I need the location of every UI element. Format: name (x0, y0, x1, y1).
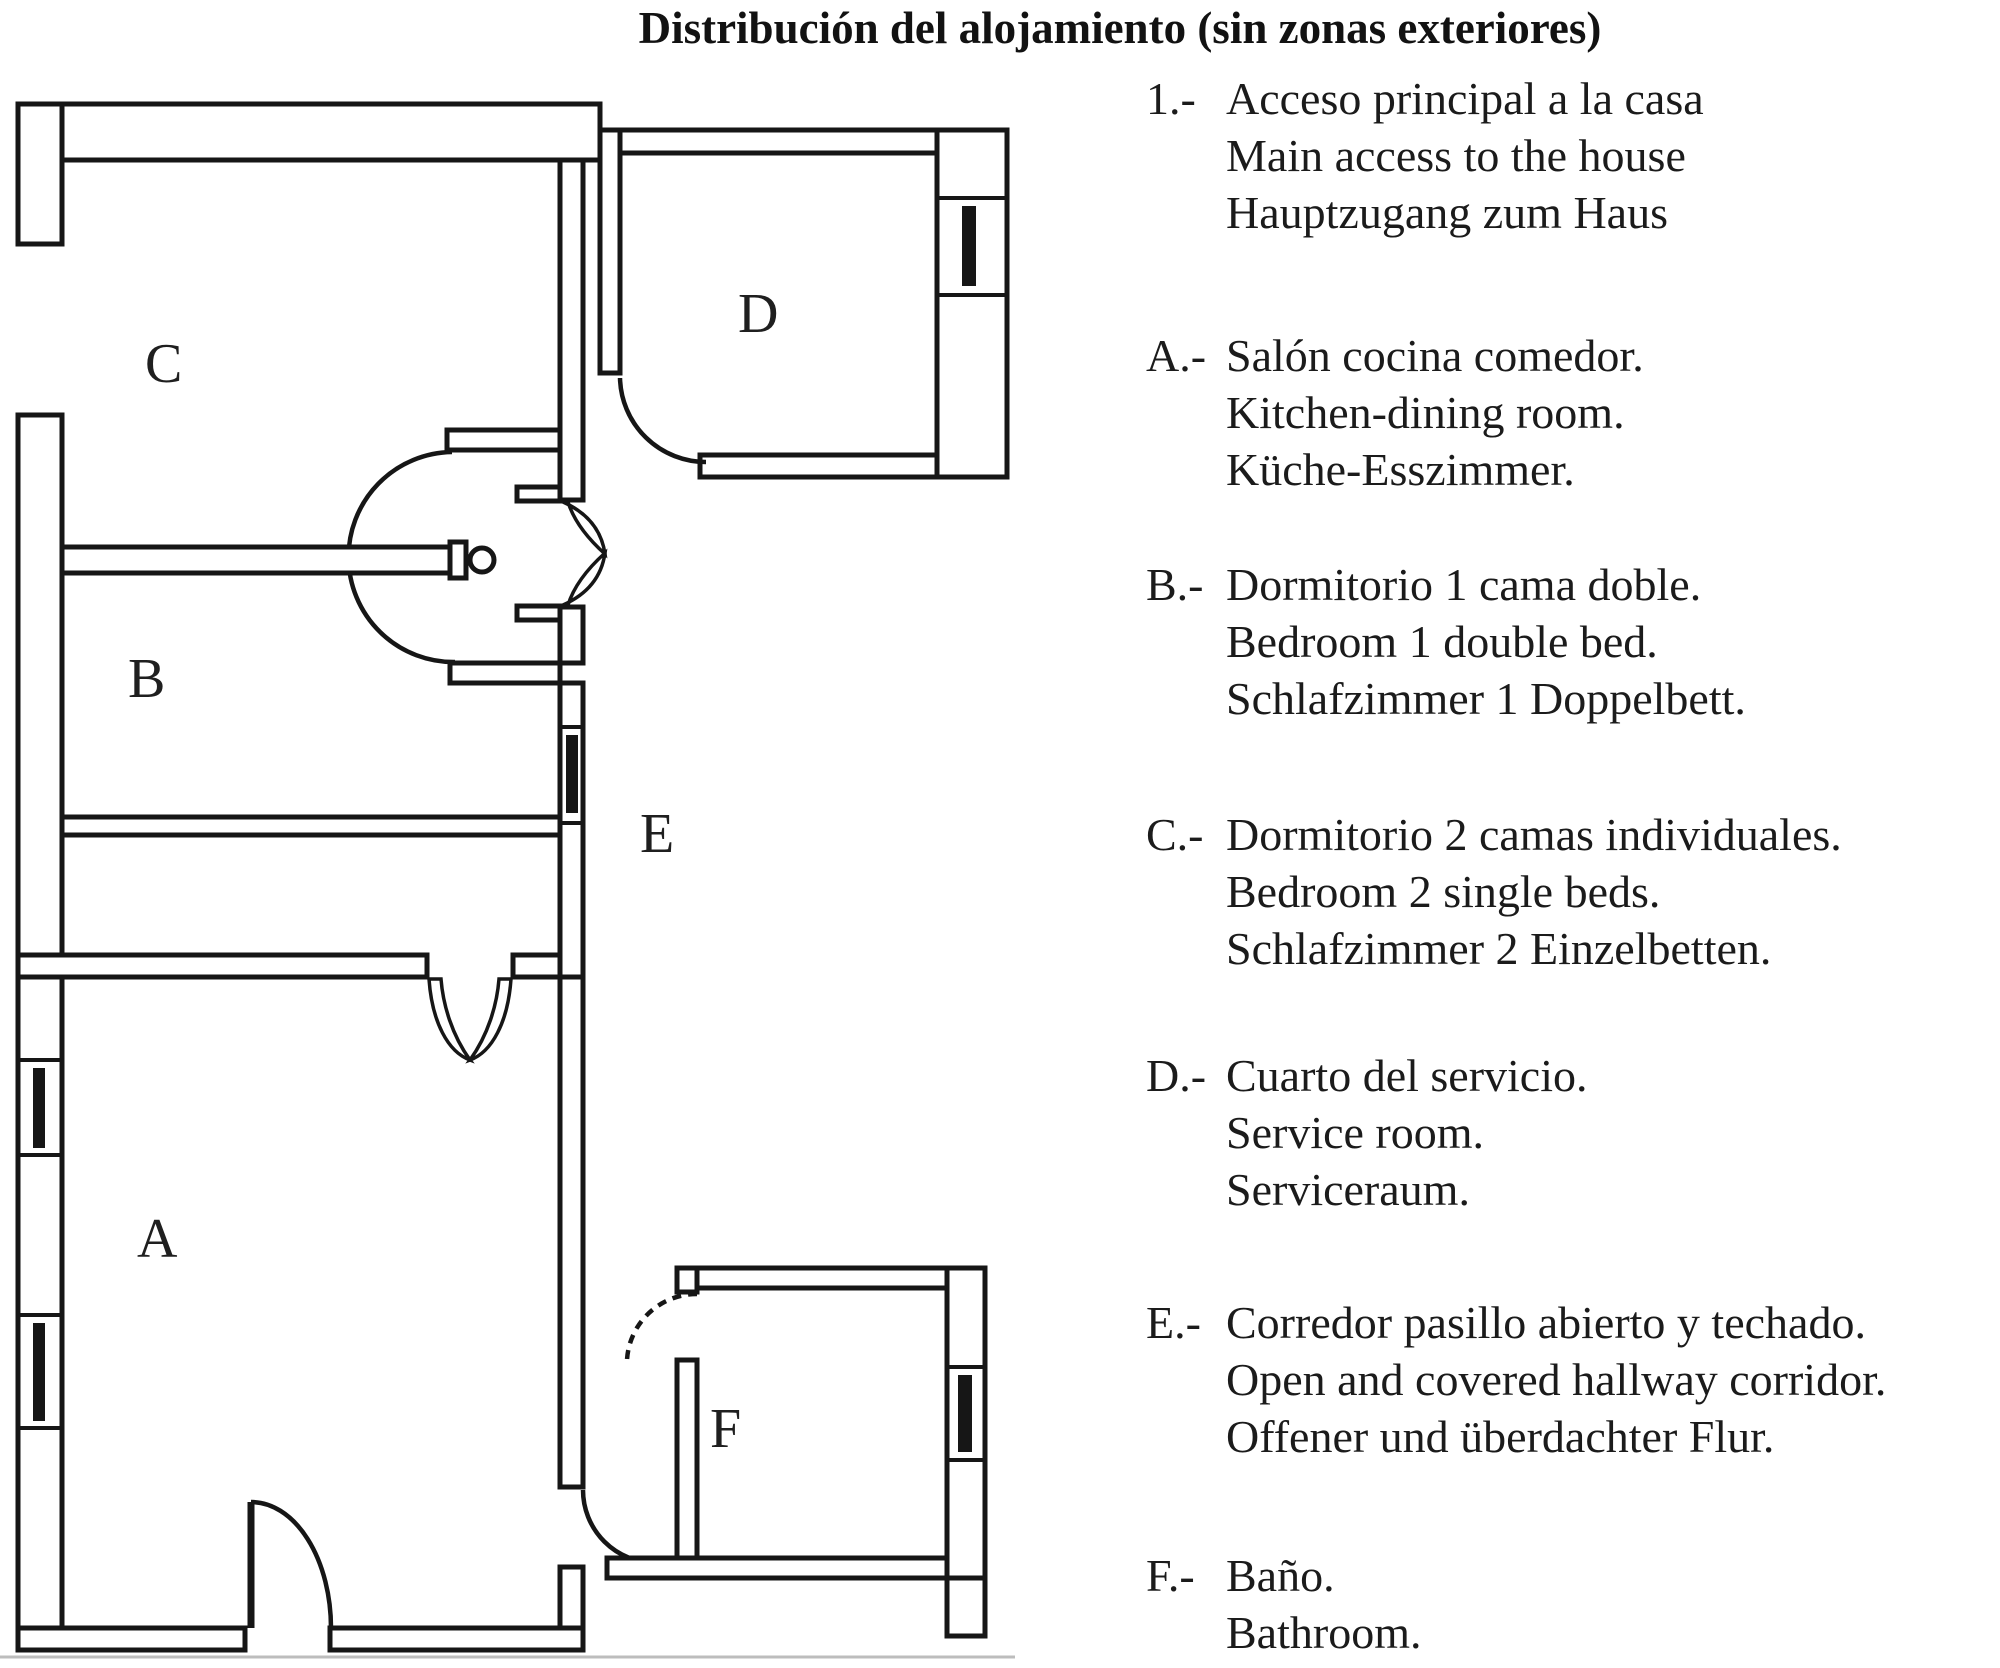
wall-f-right-ext (947, 1578, 985, 1636)
legend-line: Main access to the house (1226, 127, 1704, 184)
window-a2-bar (33, 1323, 45, 1421)
legend-lines-c: Dormitorio 2 camas individuales. Bedroom… (1226, 806, 1842, 977)
wall-f-left (677, 1360, 697, 1578)
legend-line: Kitchen-dining room. (1226, 384, 1644, 441)
wall-a-bottom-right (330, 1628, 583, 1650)
door-arc-d (620, 378, 706, 462)
wall-right-upper (560, 160, 583, 500)
wall-f-bottom (607, 1558, 967, 1578)
doors-a (251, 1490, 656, 1628)
legend-line: Küche-Esszimmer. (1226, 441, 1644, 498)
legend-key-a: A.- (1146, 327, 1226, 384)
partition-end-post (450, 542, 466, 578)
page: Distribución del alojamiento (sin zonas … (0, 0, 2000, 1668)
legend-lines-b: Dormitorio 1 cama doble. Bedroom 1 doubl… (1226, 556, 1746, 727)
legend-line: Hauptzugang zum Haus (1226, 184, 1704, 241)
entry-door-leaf-top (563, 502, 605, 554)
wall-left-lower (18, 415, 62, 1650)
legend-lines-e: Corredor pasillo abierto y techado. Open… (1226, 1294, 1886, 1465)
room-label-f: F (710, 1398, 741, 1460)
legend-line: Corredor pasillo abierto y techado. (1226, 1294, 1886, 1351)
door-knob (470, 548, 494, 572)
legend-entry-1: 1.- Acceso principal a la casa Main acce… (1146, 70, 1704, 241)
legend-line: Schlafzimmer 1 Doppelbett. (1226, 670, 1746, 727)
wall-right-bottom (560, 1567, 583, 1628)
room-label-d: D (738, 283, 778, 345)
legend-line: Bedroom 1 double bed. (1226, 613, 1746, 670)
legend-entry-b: B.- Dormitorio 1 cama doble. Bedroom 1 d… (1146, 556, 1746, 727)
legend-lines-a: Salón cocina comedor. Kitchen-dining roo… (1226, 327, 1644, 498)
door-jamb-top (517, 487, 560, 501)
door-corridor-south-arc (583, 1490, 656, 1563)
room-label-c: C (145, 333, 182, 395)
wall-a-bottom-left (18, 1628, 245, 1650)
legend-line: Service room. (1226, 1104, 1588, 1161)
legend-entry-f: F.- Baño. Bathroom. (1146, 1547, 1421, 1661)
legend-lines-f: Baño. Bathroom. (1226, 1547, 1421, 1661)
legend-lines-d: Cuarto del servicio. Service room. Servi… (1226, 1047, 1588, 1218)
entry-door-leaf-bottom (563, 553, 605, 605)
legend-entry-a: A.- Salón cocina comedor. Kitchen-dining… (1146, 327, 1644, 498)
legend-line: Serviceraum. (1226, 1161, 1588, 1218)
legend-line: Dormitorio 1 cama doble. (1226, 556, 1746, 613)
legend-line: Baño. (1226, 1547, 1421, 1604)
legend-line: Schlafzimmer 2 Einzelbetten. (1226, 920, 1842, 977)
vestibule-wall-top (447, 430, 560, 450)
legend-line: Offener und überdachter Flur. (1226, 1408, 1886, 1465)
wall-d-left (600, 130, 620, 373)
door-jamb-bottom (517, 606, 560, 620)
wall-a-top-right (513, 955, 560, 977)
wall-d-right (937, 130, 1007, 477)
legend-line: Acceso principal a la casa (1226, 70, 1704, 127)
window-b-bar (566, 735, 578, 813)
legend-line: Bedroom 2 single beds. (1226, 863, 1842, 920)
window-d-bar (962, 206, 976, 286)
vestibule (62, 430, 605, 683)
legend-line: Dormitorio 2 camas individuales. (1226, 806, 1842, 863)
legend-key-c: C.- (1146, 806, 1226, 863)
door-f-arc (627, 1294, 697, 1360)
legend-line: Salón cocina comedor. (1226, 327, 1644, 384)
legend-line: Bathroom. (1226, 1604, 1421, 1661)
wall-left-upper (18, 104, 62, 244)
wall-f-top (677, 1268, 967, 1288)
wall-right-mid1 (560, 607, 583, 663)
window-f-bar (958, 1375, 972, 1452)
door-a-arc (251, 1502, 331, 1628)
wall-b-bottom (62, 817, 560, 835)
legend-entry-e: E.- Corredor pasillo abierto y techado. … (1146, 1294, 1886, 1465)
divider-b-a (18, 817, 560, 1060)
partition-c-b (62, 547, 450, 573)
legend-key-f: F.- (1146, 1547, 1226, 1604)
room-label-b: B (128, 648, 165, 710)
legend-line: Open and covered hallway corridor. (1226, 1351, 1886, 1408)
legend-entry-d: D.- Cuarto del servicio. Service room. S… (1146, 1047, 1588, 1218)
window-a1-bar (33, 1068, 45, 1148)
vestibule-wall-bottom (450, 663, 560, 683)
legend-key-d: D.- (1146, 1047, 1226, 1104)
wall-f-left-stub (677, 1268, 697, 1292)
room-d (600, 130, 1007, 477)
legend-key-e: E.- (1146, 1294, 1226, 1351)
floorplan-svg: C D B E A F (0, 0, 1020, 1668)
legend-key-1: 1.- (1146, 70, 1226, 127)
room-label-a: A (137, 1208, 178, 1270)
wall-right-lower (560, 977, 583, 1487)
a-door-leaf-right (470, 979, 511, 1060)
legend-line: Cuarto del servicio. (1226, 1047, 1588, 1104)
legend-key-b: B.- (1146, 556, 1226, 613)
wall-c-top (18, 104, 600, 160)
a-door-leaf-left (429, 979, 470, 1060)
left-block-walls (18, 104, 600, 1650)
legend-lines-1: Acceso principal a la casa Main access t… (1226, 70, 1704, 241)
room-label-e: E (640, 803, 674, 865)
legend-entry-c: C.- Dormitorio 2 camas individuales. Bed… (1146, 806, 1842, 977)
room-f (607, 1268, 985, 1636)
wall-a-top-left (18, 955, 427, 977)
